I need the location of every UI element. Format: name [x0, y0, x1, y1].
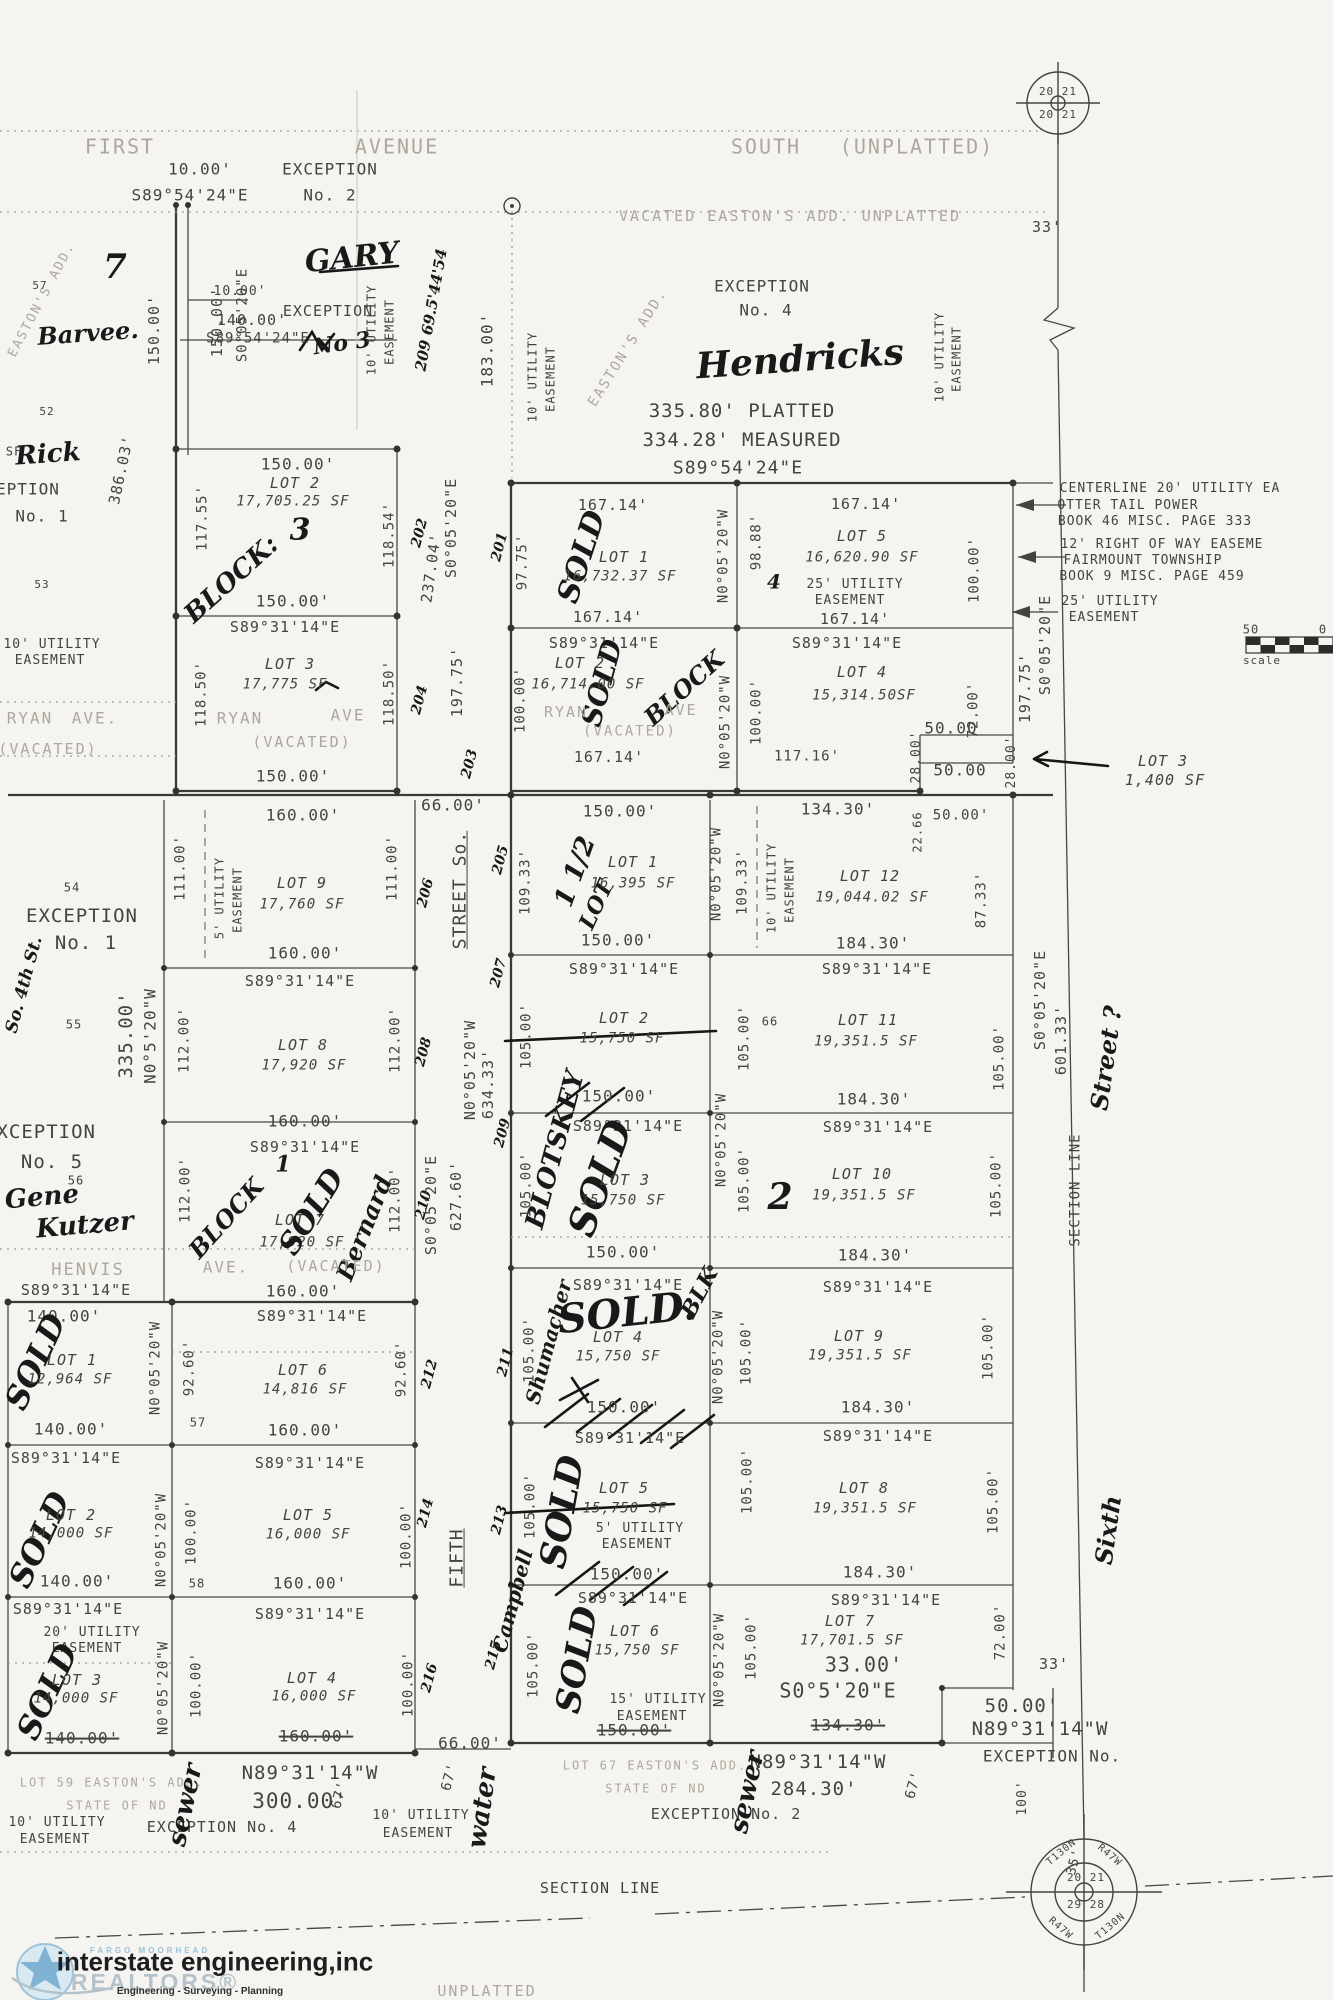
plat-label: R47W — [1095, 1843, 1123, 1869]
plat-label: 150.00' — [261, 457, 335, 474]
plat-label: S0°05'20"E — [444, 478, 460, 578]
section-line-label-vertical: SECTION LINE — [1069, 1133, 1084, 1246]
plat-label: N0°05'20"W — [719, 675, 734, 769]
note-row-easement: 12' RIGHT OF WAY EASEME — [1060, 538, 1263, 552]
annotation-sixth-street: Sixth — [1091, 1494, 1126, 1566]
plat-label: 100.00' — [402, 1651, 417, 1717]
plat-label: 150.00' — [587, 1400, 661, 1417]
plat-label: BOOK 9 MISC. PAGE 459 — [1059, 570, 1244, 584]
plat-label: 14,816 SF — [263, 1383, 348, 1398]
plat-label: 15' UTILITY — [609, 1693, 706, 1707]
plat-label: 167.14' — [831, 497, 901, 513]
plat-label: 167.14' — [573, 610, 643, 626]
plat-label: AVE. — [203, 1260, 250, 1277]
plat-label: 10' UTILITY — [3, 638, 100, 652]
measured-distance: 334.28' MEASURED — [642, 431, 841, 451]
plat-label: S89°31'14"E — [822, 962, 932, 978]
plat-label: 15,750 SF — [581, 1194, 666, 1209]
plat-label: VACATED EASTON'S ADD. UNPLATTED — [619, 209, 961, 225]
plat-label: N0°05'20"W — [149, 1321, 164, 1415]
plat-label: 10' UTILITY — [766, 843, 779, 933]
plat-label: 105.00' — [524, 1473, 539, 1539]
plat-label: 1 — [275, 1153, 290, 1176]
plat-label: 14,000 SF — [34, 1692, 119, 1707]
plat-label: S89°54'24"E — [206, 332, 310, 347]
plat-label: AVE — [664, 703, 697, 719]
plat-label: 118.50' — [383, 660, 398, 726]
plat-label: 66.00' — [438, 1736, 502, 1753]
plat-label: 204 — [409, 684, 431, 716]
plat-label: S89°54'24"E — [673, 460, 803, 479]
lot-10-block-2: LOT 10 — [832, 1167, 892, 1183]
plat-label: 15,750 SF — [580, 1032, 665, 1047]
plat-label: N0°05'20"W — [155, 1493, 170, 1587]
plat-label: EASEMENT — [20, 1833, 91, 1847]
plat-label: 20 21 — [1067, 1872, 1105, 1884]
plat-label: 184.30' — [843, 1565, 917, 1582]
plat-label: 212 — [419, 1358, 441, 1390]
plat-label: 105.00' — [741, 1448, 756, 1514]
plat-label: EASEMENT — [15, 654, 86, 668]
plat-label: 105.00' — [993, 1025, 1008, 1091]
plat-label: 105.00' — [987, 1468, 1002, 1534]
plat-label: 184.30' — [837, 1092, 911, 1109]
plat-label: 22.66 — [912, 811, 925, 852]
plat-label: BOOK 46 MISC. PAGE 333 — [1058, 515, 1252, 529]
plat-label: 3 — [290, 514, 311, 546]
plat-label: 16,000 SF — [266, 1528, 351, 1543]
plat-label: So. 4th St. — [4, 935, 47, 1035]
plat-label: 150.00' — [586, 1245, 660, 1262]
plat-label: 92.60' — [395, 1341, 410, 1398]
plat-label: RYAN — [544, 705, 588, 721]
lot-2-block-4: LOT 2 — [555, 656, 605, 672]
plat-label: EASEMENT — [545, 346, 558, 412]
plat-label: 160.00' — [268, 1423, 342, 1440]
plat-label: N0°05'20"W — [463, 1020, 479, 1120]
plat-label: 206 — [415, 877, 437, 909]
plat-label: 150.00' — [583, 804, 657, 821]
plat-label: EASEMENT — [951, 326, 964, 392]
plat-label: 197.75' — [450, 647, 466, 717]
plat-label: 10' UTILITY — [372, 1809, 469, 1823]
plat-label: N0°05'20"W — [712, 1310, 727, 1404]
plat-label: 150.00' — [147, 295, 163, 365]
plat-label: 100.00' — [400, 1503, 415, 1569]
plat-label: S89°31'14"E — [21, 1283, 131, 1299]
plat-label: 72.00' — [967, 682, 982, 739]
plat-label: Street ? — [1086, 1004, 1126, 1112]
plat-label: 150.00' — [597, 1723, 671, 1740]
plat-label: EASEMENT — [383, 1827, 454, 1841]
plat-label: 28.00' — [1005, 736, 1019, 789]
plat-label: 97.75' — [516, 534, 531, 591]
plat-label: S89°31'14"E — [250, 1140, 360, 1156]
annotation-water: water — [464, 1766, 502, 1850]
plat-label: 105.00' — [520, 1152, 535, 1218]
lot-5-block-4: LOT 5 — [837, 529, 887, 545]
plat-label: (VACATED) — [286, 1259, 385, 1275]
plat-label: S89°31'14"E — [578, 1591, 688, 1607]
plat-label: EXCEPTION — [26, 907, 138, 927]
plat-label: 184.30' — [841, 1400, 915, 1417]
lot-1-block-2: LOT 1 — [608, 855, 658, 871]
plat-label: 52 — [39, 406, 54, 418]
plat-label: 105.00' — [520, 1003, 535, 1069]
monument-top-sections: 20 21 — [1039, 86, 1077, 98]
plat-label: 33' — [1039, 1657, 1069, 1673]
lot-1-lower-block: LOT 1 — [47, 1353, 97, 1369]
plat-label: SOUTH — [731, 137, 801, 158]
lot-7-block-2: LOT 7 — [825, 1614, 875, 1630]
plat-label: 386.03' — [107, 434, 137, 506]
plat-label: 50 — [1243, 624, 1259, 637]
plat-label: 184.30' — [836, 936, 910, 953]
plat-label: 105.00' — [745, 1614, 760, 1680]
plat-label: 160.00' — [266, 808, 340, 825]
plat-label: 17,760 SF — [260, 898, 345, 913]
plat-label: 19,351.5 SF — [808, 1349, 912, 1364]
plat-label: 109.33' — [519, 849, 534, 915]
plat-label: EXCEPTION — [714, 279, 810, 296]
labels-layer: FIRSTAVENUESOUTH(UNPLATTED)EASTON'S ADD.… — [0, 0, 1333, 2000]
plat-label: 19,351.5 SF — [813, 1502, 917, 1517]
plat-label: 634.33' — [481, 1049, 497, 1119]
plat-label: 17,701.5 SF — [800, 1634, 904, 1649]
plat-label: 112.00' — [389, 1167, 404, 1233]
plat-label: 111.00' — [386, 835, 401, 901]
plat-label: EXCEPTION — [282, 162, 378, 179]
plat-label: 67' — [903, 1769, 925, 1800]
plat-label: 87.33' — [975, 872, 990, 929]
plat-label: 335.00' — [117, 991, 137, 1078]
plat-label: 58 — [189, 1578, 205, 1591]
annotation-gene-kutzer: Gene — [4, 1181, 80, 1215]
plat-label: 19,044.02 SF — [815, 891, 928, 906]
lot-3-lower-block: LOT 3 — [52, 1673, 102, 1689]
plat-label: N89°31'14"W — [972, 1720, 1109, 1740]
plat-label: 20 21 — [1039, 109, 1077, 121]
plat-label: EASEMENT — [815, 594, 886, 608]
plat-label: 205 — [490, 844, 512, 876]
lot-5-lower-block: LOT 5 — [283, 1508, 333, 1524]
plat-label: EASTON'S ADD. — [586, 287, 670, 410]
plat-label: S89°31'14"E — [831, 1593, 941, 1609]
plat-scan-page: FIRSTAVENUESOUTH(UNPLATTED)EASTON'S ADD.… — [0, 0, 1333, 2000]
plat-label: 150.00' — [582, 1089, 656, 1106]
plat-label: FAIRMOUNT TOWNSHIP — [1064, 554, 1223, 568]
plat-label: 105.00' — [990, 1152, 1005, 1218]
plat-label: 140.00' — [217, 313, 287, 329]
plat-label: 25' UTILITY — [1061, 595, 1158, 609]
plat-label: 105.00' — [738, 1005, 753, 1071]
plat-label: 150.00' — [256, 769, 330, 786]
plat-label: S89°31'14"E — [569, 962, 679, 978]
plat-label: SOLD — [551, 1604, 605, 1716]
plat-label: 160.00' — [268, 946, 342, 963]
plat-label: 134.30' — [811, 1718, 885, 1735]
lot-4-block-4: LOT 4 — [837, 665, 887, 681]
lot-9-block-1: LOT 9 — [277, 876, 327, 892]
plat-label: 7 — [103, 250, 127, 286]
plat-label: 5' UTILITY — [596, 1522, 684, 1536]
plat-label: 17,920 SF — [262, 1059, 347, 1074]
plat-label: S0°05'20"E — [424, 1155, 440, 1255]
plat-label: 100.00' — [190, 1652, 205, 1718]
plat-label: S89°31'14"E — [13, 1602, 123, 1618]
plat-label: 53 — [34, 579, 49, 591]
plat-label: S0°05'20"E — [1033, 950, 1049, 1050]
plat-label: 208 — [413, 1036, 435, 1068]
plat-label: 209 — [492, 1117, 514, 1149]
plat-label: S89°31'14"E — [823, 1429, 933, 1445]
plat-label: (UNPLATTED) — [840, 137, 994, 158]
plat-label: S0°5'20"E — [779, 1681, 896, 1702]
plat-label: 66 — [762, 1016, 778, 1029]
plat-label: N0°05'20"W — [157, 1641, 172, 1735]
plat-label: No. 5 — [21, 1153, 83, 1173]
plat-label: 16,000 SF — [272, 1690, 357, 1705]
lot-6-lower-block: LOT 6 — [278, 1363, 328, 1379]
plat-label: 57 — [32, 280, 47, 292]
plat-label: EXCEPTION No. — [983, 1749, 1121, 1766]
plat-label: 16,620.90 SF — [805, 551, 918, 566]
plat-label: (VACATED) — [252, 735, 351, 751]
plat-label: EASEMENT — [384, 299, 397, 365]
plat-label: AVE. — [72, 711, 119, 728]
plat-label: Kutzer — [35, 1208, 135, 1244]
plat-label: 105.00' — [738, 1147, 753, 1213]
plat-label: 10' UTILITY — [934, 312, 947, 402]
plat-label: 284.30' — [770, 1780, 857, 1800]
lot-3-block-2: LOT 3 — [600, 1173, 650, 1189]
plat-label: 15,750 SF — [595, 1644, 680, 1659]
lot-8-block-1: LOT 8 — [278, 1038, 328, 1054]
plat-label: 105.00' — [527, 1632, 542, 1698]
plat-label: 10' UTILITY — [8, 1816, 105, 1830]
plat-label: 57 — [190, 1417, 206, 1430]
plat-label: SF — [6, 446, 22, 459]
plat-label: 25' UTILITY — [806, 578, 903, 592]
plat-label: 50.00 — [933, 763, 986, 780]
plat-label: 167.14' — [820, 612, 890, 628]
plat-label: 15,314.50SF — [812, 689, 916, 704]
plat-label: 134.30' — [801, 802, 875, 819]
plat-label: 140.00' — [45, 1731, 119, 1748]
scale-label: scale — [1243, 655, 1281, 667]
lot-2-lower-block: LOT 2 — [46, 1508, 96, 1524]
plat-label: 19,351.5 SF — [814, 1035, 918, 1050]
plat-label: (VACATED) — [583, 725, 677, 740]
plat-label: 19,351.5 SF — [812, 1189, 916, 1204]
plat-label: 33.00' — [825, 1655, 903, 1676]
plat-label: No 3 — [312, 329, 372, 360]
plat-label: 55 — [66, 1019, 82, 1032]
plat-label: EXCEPTION — [0, 1123, 96, 1143]
plat-label: 214 — [415, 1497, 437, 1529]
plat-label: 109.33' — [736, 849, 751, 915]
plat-label: S89°31'14"E — [255, 1607, 365, 1623]
plat-label: 98.88' — [750, 514, 765, 571]
plat-label: FIFTH — [449, 1528, 468, 1587]
plat-label: 20' UTILITY — [43, 1626, 140, 1640]
plat-label: S89°54'24"E — [132, 188, 249, 205]
plat-label: N0°05'20"W — [717, 509, 732, 603]
plat-label: 54 — [64, 882, 80, 895]
plat-label: 33' — [1032, 220, 1062, 236]
plat-label: 29 28 — [1067, 1899, 1105, 1911]
plat-label: 16,714.00 SF — [531, 678, 644, 693]
plat-label: S89°31'14"E — [230, 620, 340, 636]
platted-distance: 335.80' PLATTED — [649, 402, 836, 422]
plat-label: LOT 67 EASTON'S ADD. — [563, 1760, 748, 1773]
plat-label: 183.00' — [480, 313, 497, 387]
plat-label: 100.00' — [185, 1499, 200, 1565]
plat-label: 10' UTILITY — [527, 332, 540, 422]
plat-label: N0°5'20"W — [143, 988, 160, 1084]
lot-4-block-2: LOT 4 — [593, 1330, 643, 1346]
plat-label: 14,000 SF — [29, 1527, 114, 1542]
plat-label: 209 69.5'44'54 — [413, 248, 450, 373]
street-name-avenue: AVENUE — [355, 137, 439, 158]
plat-label: 117.55' — [196, 485, 211, 551]
plat-label: 15,750 SF — [583, 1502, 668, 1517]
plat-label: 211 — [495, 1346, 517, 1378]
plat-label: 197.75' — [1018, 653, 1034, 723]
plat-label: 216 — [419, 1662, 441, 1694]
plat-label: 2 — [767, 1179, 792, 1217]
plat-label: 16,732.37 SF — [563, 570, 676, 585]
street-name-fifth-street: STREET So. — [452, 831, 471, 949]
lot-1-block-4: LOT 1 — [599, 550, 649, 566]
plat-label: S89°31'14"E — [792, 636, 902, 652]
plat-label: EASEMENT — [602, 1538, 673, 1552]
lot-6-block-2: LOT 6 — [610, 1624, 660, 1640]
annotation-hendricks: Hendricks — [695, 334, 905, 386]
plat-label: 117.16' — [774, 750, 840, 765]
plat-label: 10.00' — [214, 285, 267, 299]
plat-label: 100.00' — [514, 667, 529, 733]
plat-label: N89°31'14"W — [242, 1764, 379, 1784]
plat-label: S89°31'14"E — [823, 1120, 933, 1136]
plat-label: 67' — [439, 1761, 461, 1792]
plat-label: S89°31'14"E — [255, 1456, 365, 1472]
plat-label: 140.00' — [40, 1574, 114, 1591]
plat-label: 167.14' — [574, 750, 644, 766]
plat-label: OTTER TAIL POWER — [1057, 499, 1198, 513]
plat-label: 112.00' — [389, 1007, 404, 1073]
plat-label: 160.00' — [266, 1284, 340, 1301]
plat-label: EASEMENT — [784, 857, 797, 923]
plat-label: N0°05'20"W — [710, 827, 725, 921]
plat-label: 160.00' — [273, 1576, 347, 1593]
lot-9-block-2: LOT 9 — [834, 1329, 884, 1345]
plat-label: 150.00' — [581, 933, 655, 950]
plat-label: 201 — [489, 531, 511, 563]
plat-label: S0°05'20"E — [1038, 595, 1054, 695]
plat-label: N0°05'20"W — [715, 1093, 730, 1187]
plat-label: 72.00' — [994, 1604, 1009, 1661]
note-centerline-easement: CENTERLINE 20' UTILITY EA — [1060, 482, 1281, 496]
plat-label: 4 — [767, 572, 781, 593]
lot-2-block-2: LOT 2 — [599, 1011, 649, 1027]
plat-label: LOT 3 — [1138, 754, 1188, 770]
plat-label: S89°31'14"E — [823, 1280, 933, 1296]
plat-label: 140.00' — [34, 1422, 108, 1439]
plat-label: 105.00' — [523, 1317, 538, 1383]
plat-label: Rick — [14, 439, 81, 471]
plat-label: 112.00' — [179, 1157, 194, 1223]
plat-label: 10' UTILITY — [366, 285, 379, 375]
plat-label: 150.00' — [590, 1567, 664, 1584]
lot-5-block-2: LOT 5 — [599, 1481, 649, 1497]
plat-label: 213 — [489, 1504, 511, 1536]
plat-label: 15,750 SF — [576, 1350, 661, 1365]
plat-label: BLOCK — [184, 1173, 268, 1263]
plat-label: 601.33' — [1054, 1005, 1070, 1075]
plat-label: 112.00' — [178, 1007, 193, 1073]
plat-label: AVE — [331, 708, 366, 725]
plat-label: 10.00' — [168, 162, 232, 179]
plat-label: 184.30' — [838, 1248, 912, 1265]
plat-label: 5' UTILITY — [214, 857, 227, 939]
plat-label: 207 — [488, 957, 510, 989]
annotation-gary: GARY — [303, 237, 400, 278]
plat-label: EXCEPTION — [283, 304, 373, 320]
plat-label: 17,705.25 SF — [236, 495, 349, 510]
plat-label: 160.00' — [268, 1114, 342, 1131]
plat-label: T130N — [1094, 1912, 1128, 1943]
plat-label: 28.00' — [910, 731, 924, 784]
section-line-label: SECTION LINE — [540, 1881, 660, 1897]
plat-label: EASEMENT — [1069, 611, 1140, 625]
plat-label: 203 — [459, 748, 481, 780]
plat-label: 92.60' — [183, 1340, 198, 1397]
plat-label: (VACATED) — [0, 742, 98, 758]
plat-label: 100.00' — [968, 537, 983, 603]
plat-label: UNPLATTED — [437, 1984, 536, 2000]
plat-label: EASEMENT — [232, 867, 245, 933]
plat-label: RYAN — [217, 711, 264, 728]
plat-label: 100' — [1016, 1780, 1030, 1815]
lot-3-block-3: LOT 3 — [265, 657, 315, 673]
plat-label: No. 4 — [739, 303, 792, 320]
plat-label: 111.00' — [174, 835, 189, 901]
plat-label: 1,400 SF — [1125, 773, 1205, 789]
plat-label: S89°31'14"E — [575, 1431, 685, 1447]
plat-label: 16,395 SF — [591, 877, 676, 892]
plat-label: 118.50' — [195, 661, 210, 727]
plat-label: R47W — [1046, 1916, 1074, 1942]
plat-label: N0°05'20"W — [713, 1613, 728, 1707]
plat-label: 105.00' — [740, 1319, 755, 1385]
plat-label: No. 1 — [55, 934, 117, 954]
plat-label: S89°31'14"E — [245, 974, 355, 990]
lot-4-lower-block: LOT 4 — [287, 1671, 337, 1687]
plat-label: S89°31'14"E — [257, 1309, 367, 1325]
plat-label: No. 1 — [15, 509, 68, 526]
plat-label: 627.60' — [449, 1161, 465, 1231]
plat-label: 66.00' — [421, 798, 485, 815]
firm-tagline: Engineering - Surveying - Planning — [117, 1987, 283, 1998]
plat-label: 150.00' — [256, 594, 330, 611]
plat-label: Barvee. — [37, 317, 140, 349]
plat-label: No. 2 — [303, 188, 356, 205]
plat-label: 50.00' — [933, 809, 990, 824]
lot-2-block-3: LOT 2 — [270, 476, 320, 492]
street-name-first: FIRST — [85, 137, 155, 158]
lot-8-block-2: LOT 8 — [839, 1481, 889, 1497]
